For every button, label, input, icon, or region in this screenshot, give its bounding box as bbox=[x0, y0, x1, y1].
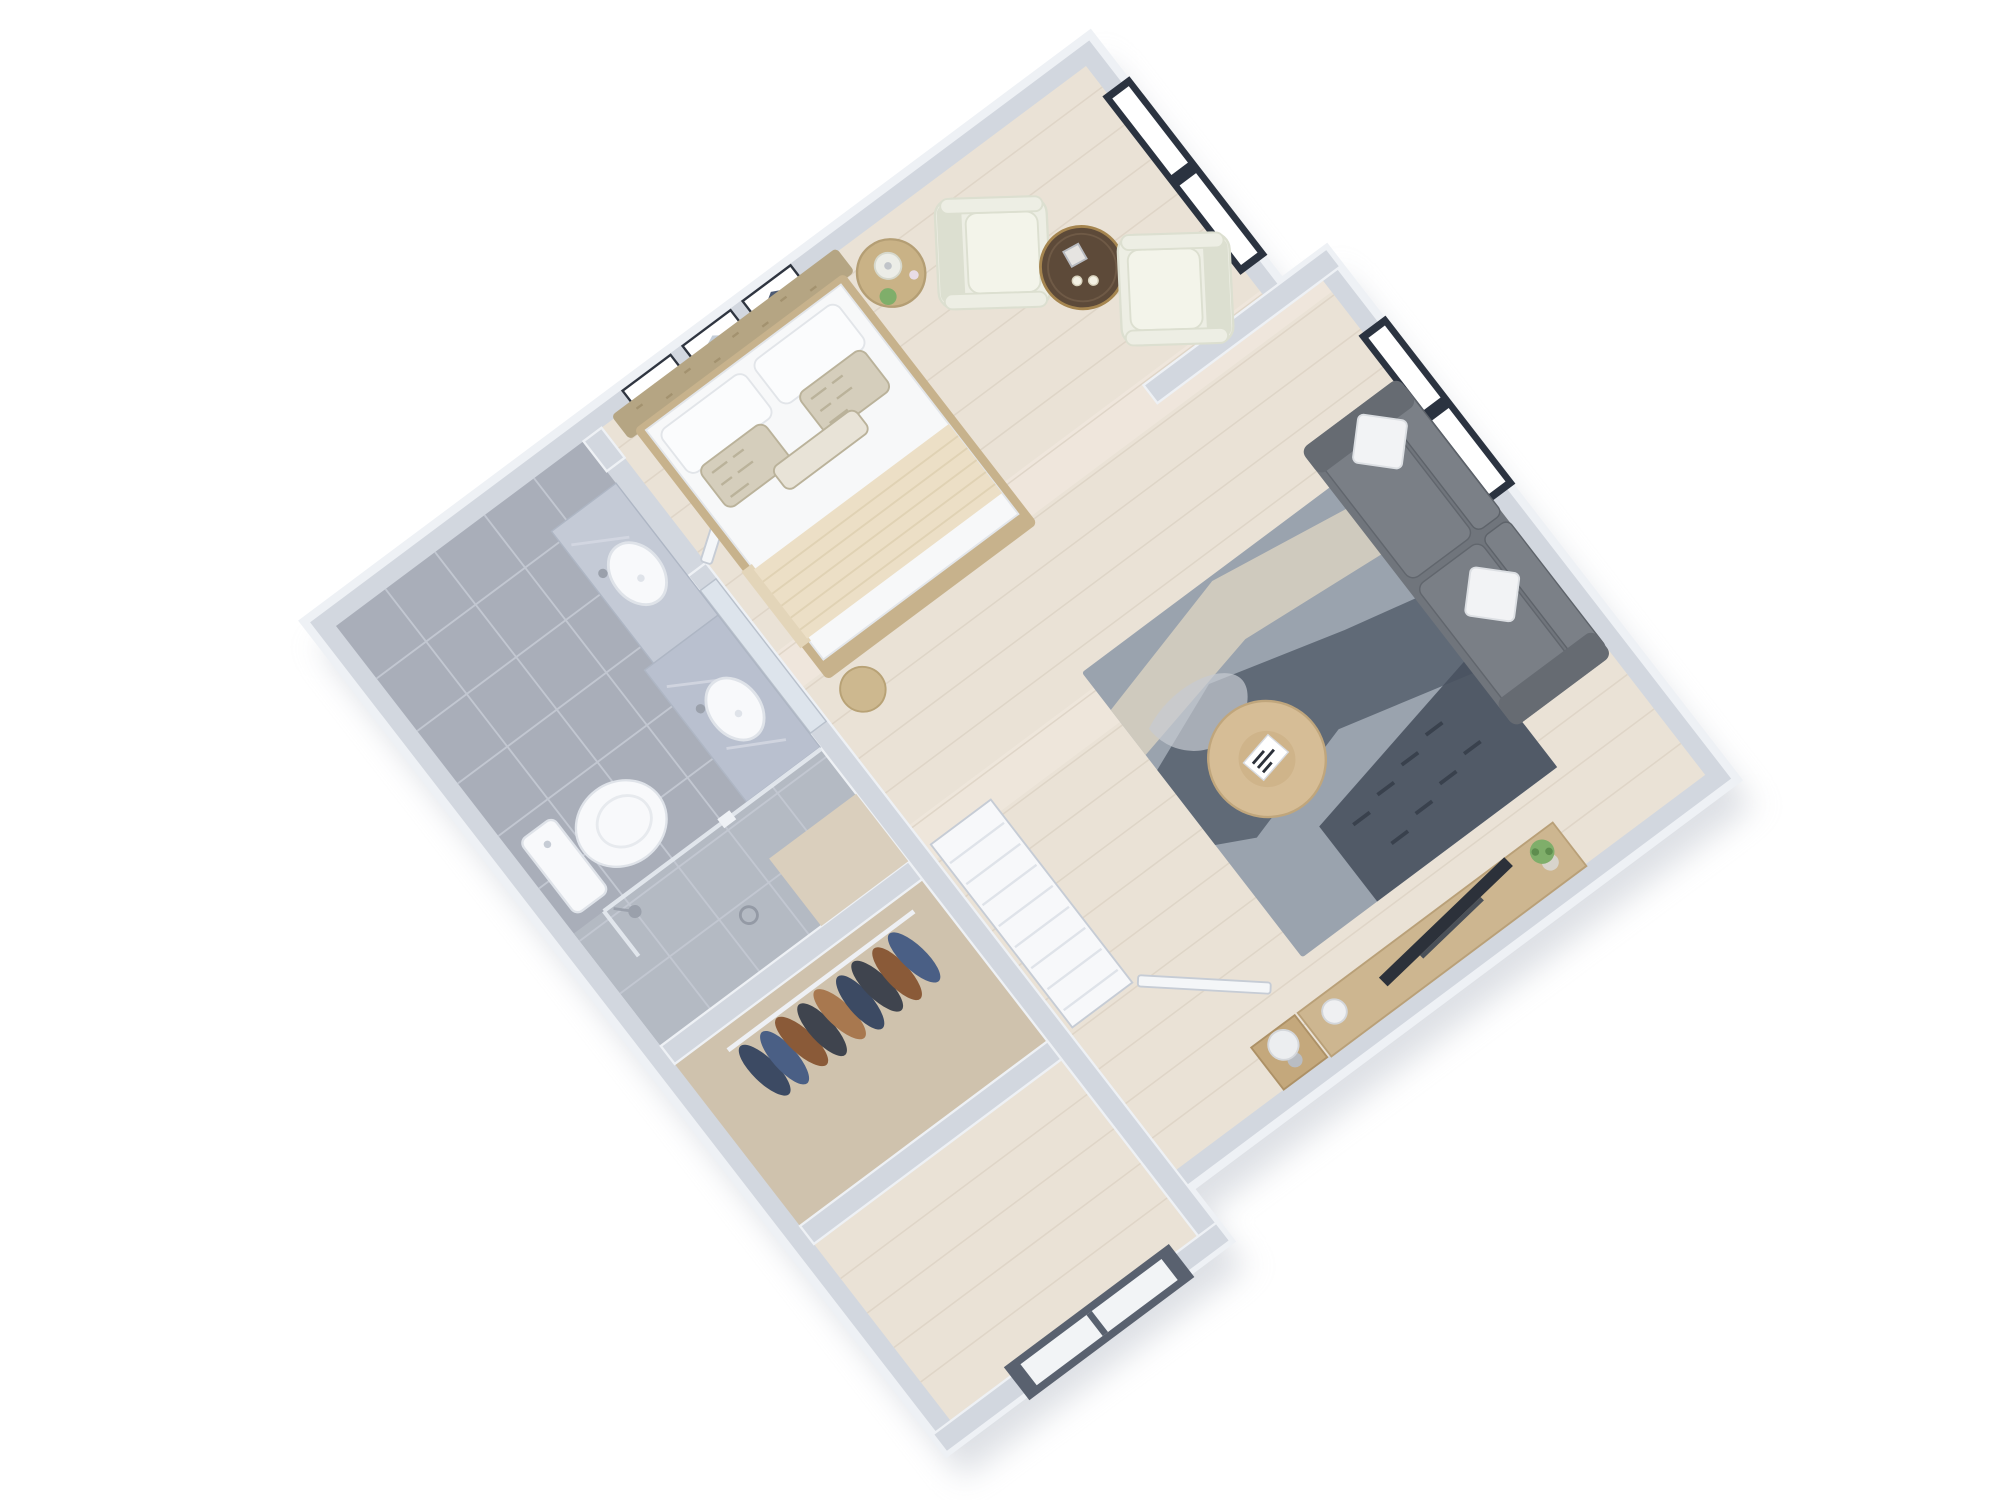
armchair-2: Ivory armchair bbox=[1117, 232, 1234, 346]
apartment: Living area Bathroom Entry vestibule bbox=[304, 0, 1787, 1458]
sofa-pillow-2 bbox=[1465, 567, 1520, 622]
floor-plan-stage: Studio apartment 3D floor plan Living ar… bbox=[0, 0, 2000, 1500]
floor-plan-svg: Studio apartment 3D floor plan Living ar… bbox=[0, 0, 2000, 1500]
armchair-1: Ivory armchair bbox=[934, 196, 1051, 310]
sofa-pillow-1 bbox=[1352, 414, 1407, 469]
